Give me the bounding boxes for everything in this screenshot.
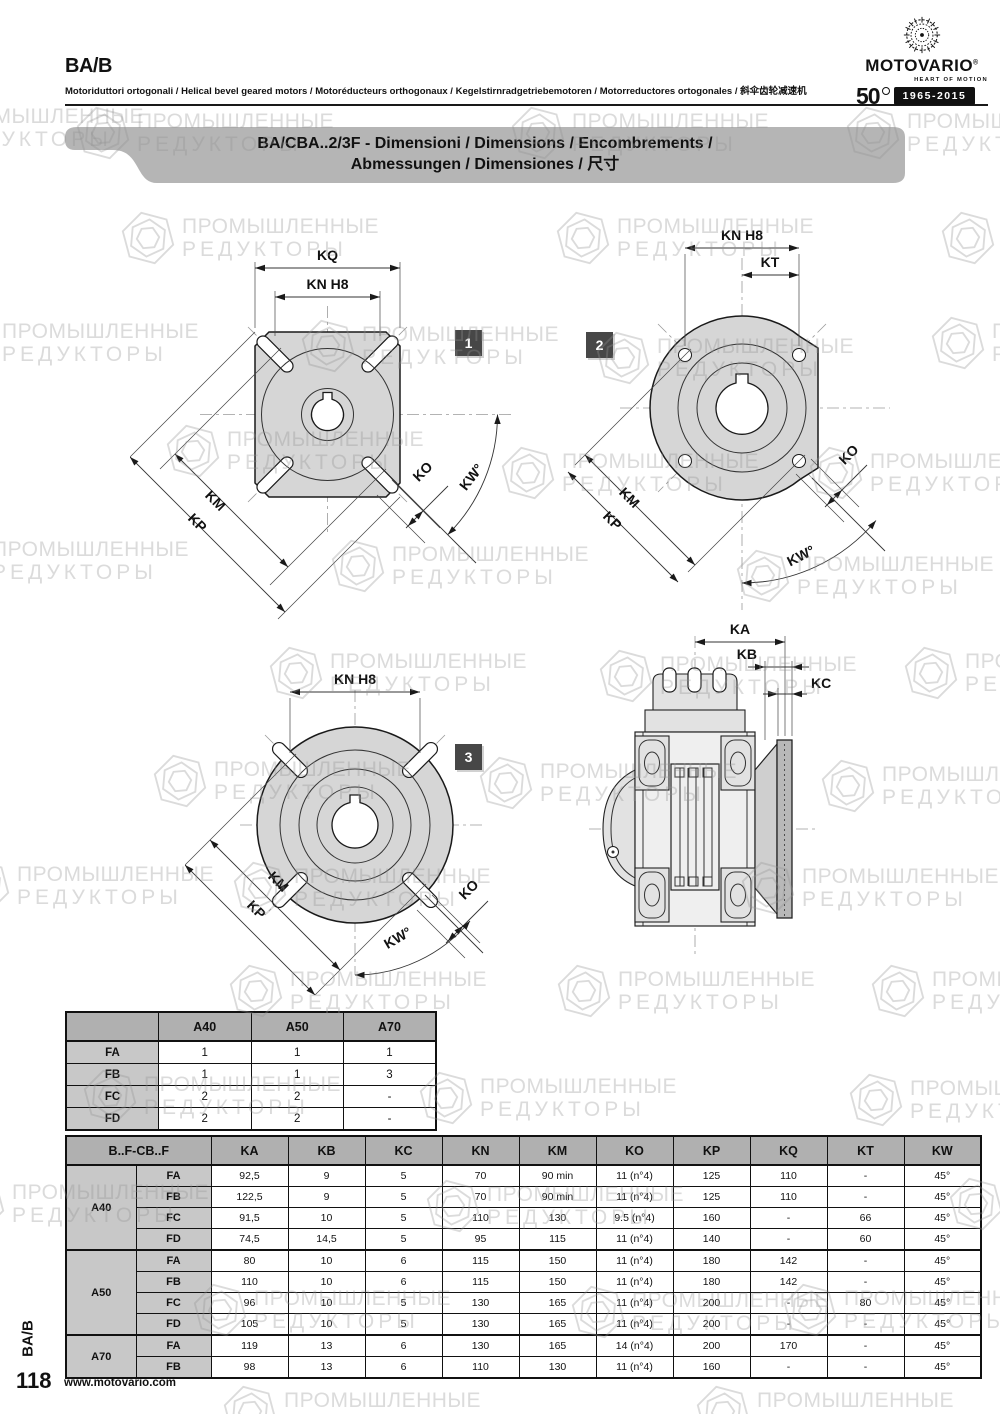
dim-cell: 91,5 — [211, 1208, 288, 1229]
dim-cell: 130 — [519, 1357, 596, 1379]
dim-cell: 11 (n°4) — [596, 1229, 673, 1251]
dim-col-header: KO — [596, 1136, 673, 1165]
watermark: ПРОМЫШЛЕННЫЕРЕДУКТОРЫ — [848, 1072, 1000, 1128]
table-row: A40FA92,5957090 min11 (n°4)125110-45° — [66, 1165, 981, 1187]
brand-name: MOTOVARIO® — [856, 56, 988, 76]
dim-cell: 5 — [365, 1208, 442, 1229]
gear-emblem-icon — [901, 14, 943, 56]
group-label: A50 — [66, 1250, 136, 1335]
dim-cell: 119 — [211, 1335, 288, 1357]
dim-cell: 11 (n°4) — [596, 1250, 673, 1272]
dim-label-ko: KO — [455, 876, 481, 902]
flange-cell: 1 — [159, 1064, 252, 1086]
dim-cell: 45° — [904, 1250, 981, 1272]
dim-cell: 11 (n°4) — [596, 1272, 673, 1293]
dim-cell: 45° — [904, 1293, 981, 1314]
gear-degree-icon — [882, 87, 890, 95]
dim-cell: 6 — [365, 1250, 442, 1272]
dim-cell: 180 — [673, 1250, 750, 1272]
dim-cell: 98 — [211, 1357, 288, 1379]
table-row: FB113 — [66, 1064, 436, 1086]
technical-drawing-square-flange: KQ KN H8 KM KP KO KW° — [130, 228, 530, 648]
dim-cell: 115 — [442, 1272, 519, 1293]
dim-cell: 45° — [904, 1314, 981, 1336]
watermark: ПРОМЫШЛЕННЫЕРЕДУКТОРЫ — [695, 1384, 954, 1414]
dimensions-table: B..F-CB..FKAKBKCKNKMKOKPKQKTKW A40FA92,5… — [65, 1135, 982, 1379]
dim-label-kb: KB — [737, 646, 757, 662]
flange-count-table: A40A50A70 FA111FB113FC22-FD22- — [65, 1011, 437, 1131]
watermark: ПРОМЫШЛЕННЫЕРЕДУКТОРЫ — [0, 858, 214, 914]
dim-cell: 95 — [442, 1229, 519, 1251]
table-row: FC22- — [66, 1086, 436, 1108]
dim-cell: 105 — [211, 1314, 288, 1336]
dim-cell: 5 — [365, 1187, 442, 1208]
website-text: www.motovario.com — [64, 1377, 176, 1389]
dim-cell: 6 — [365, 1357, 442, 1379]
dim-cell: 130 — [442, 1314, 519, 1336]
dim-cell: 45° — [904, 1335, 981, 1357]
variant-label: FD — [136, 1314, 211, 1336]
table-row: FC9610513016511 (n°4)200-8045° — [66, 1293, 981, 1314]
flange-cell: 1 — [159, 1041, 252, 1064]
dim-label-km: KM — [202, 487, 229, 514]
flange-cell: 2 — [159, 1086, 252, 1108]
dim-cell: 80 — [827, 1293, 904, 1314]
dim-cell: 45° — [904, 1208, 981, 1229]
anniversary-years: 1965-2015 — [894, 87, 976, 105]
dim-cell: - — [827, 1335, 904, 1357]
dim-col-header: KB — [288, 1136, 365, 1165]
dim-col-header: KN — [442, 1136, 519, 1165]
catalog-page: BA/B Motoriduttori ortogonali / Helical … — [0, 0, 1000, 1414]
flange-col-header: A70 — [344, 1012, 437, 1041]
registered-mark: ® — [973, 59, 979, 66]
dim-cell: 5 — [365, 1293, 442, 1314]
flange-cell: - — [344, 1086, 437, 1108]
dim-cell: 160 — [673, 1208, 750, 1229]
dim-cell: 90 min — [519, 1187, 596, 1208]
dim-label-kp: KP — [244, 897, 269, 922]
dim-label-kc: KC — [811, 675, 831, 691]
dim-label-kp: KP — [185, 510, 210, 535]
flange-row-label: FA — [66, 1041, 159, 1064]
dim-cell: 90 min — [519, 1165, 596, 1187]
dim-cell: 74,5 — [211, 1229, 288, 1251]
flange-row-label: FB — [66, 1064, 159, 1086]
variant-label: FA — [136, 1250, 211, 1272]
table-row: A50FA8010611515011 (n°4)180142-45° — [66, 1250, 981, 1272]
dim-cell: 110 — [211, 1272, 288, 1293]
dim-cell: 14,5 — [288, 1229, 365, 1251]
dim-col-header: KC — [365, 1136, 442, 1165]
dim-col-header: KM — [519, 1136, 596, 1165]
dim-col-header: KQ — [750, 1136, 827, 1165]
anniversary-number: 50 — [856, 86, 880, 106]
variant-label: FB — [136, 1272, 211, 1293]
dim-cell: 45° — [904, 1187, 981, 1208]
dim-cell: 140 — [673, 1229, 750, 1251]
dim-label-ko: KO — [835, 441, 861, 467]
watermark: ПРОМЫШЛЕННЫЕРЕДУКТОРЫ — [870, 963, 1000, 1019]
dim-cell: 125 — [673, 1187, 750, 1208]
dim-label-km: KM — [616, 484, 643, 511]
dim-label-kw: KW° — [784, 542, 817, 569]
dim-cell: 70 — [442, 1187, 519, 1208]
dim-label-ka: KA — [730, 621, 750, 637]
dim-label-kq: KQ — [317, 247, 338, 263]
variant-label: FA — [136, 1165, 211, 1187]
dim-cell: 11 (n°4) — [596, 1314, 673, 1336]
dim-cell: 110 — [442, 1208, 519, 1229]
dim-cell: 10 — [288, 1208, 365, 1229]
dim-cell: 115 — [519, 1229, 596, 1251]
page-subtitle: Motoriduttori ortogonali / Helical bevel… — [65, 83, 807, 97]
table-row: FB11010611515011 (n°4)180142-45° — [66, 1272, 981, 1293]
dim-group-header: B..F-CB..F — [66, 1136, 211, 1165]
dim-cell: 110 — [750, 1187, 827, 1208]
dim-cell: 70 — [442, 1165, 519, 1187]
flange-cell: - — [344, 1108, 437, 1131]
technical-drawing-side-view: KA KB KC — [585, 618, 920, 963]
page-number: 118 — [16, 1368, 52, 1394]
dim-cell: 45° — [904, 1272, 981, 1293]
dim-cell: 130 — [519, 1208, 596, 1229]
dim-cell: 142 — [750, 1272, 827, 1293]
dim-label-ko: KO — [409, 458, 435, 484]
dim-cell: 10 — [288, 1250, 365, 1272]
watermark: ПРОМЫШЛЕННЫЕРЕДУКТОРЫ — [222, 1384, 481, 1414]
flange-cell: 1 — [344, 1041, 437, 1064]
flange-col-header: A50 — [251, 1012, 344, 1041]
dim-label-kw: KW° — [456, 461, 486, 494]
dim-cell: 115 — [442, 1250, 519, 1272]
dim-cell: 11 (n°4) — [596, 1293, 673, 1314]
variant-label: FC — [136, 1208, 211, 1229]
page-title: BA/B — [65, 55, 112, 78]
variant-label: FB — [136, 1187, 211, 1208]
dim-label-kt: KT — [761, 254, 780, 270]
dim-cell: 92,5 — [211, 1165, 288, 1187]
technical-drawing-round-flange: KN H8 KT KM KP KO KW° — [560, 218, 970, 638]
dim-label-kw: KW° — [381, 924, 414, 952]
header-rule — [65, 104, 988, 106]
dim-cell: - — [750, 1314, 827, 1336]
dim-col-header: KA — [211, 1136, 288, 1165]
dim-label-kn: KN H8 — [334, 671, 376, 687]
table-row: A70FA11913613016514 (n°4)200170-45° — [66, 1335, 981, 1357]
flange-cell: 1 — [251, 1041, 344, 1064]
dim-cell: 5 — [365, 1314, 442, 1336]
flange-col-header — [66, 1012, 159, 1041]
technical-drawing-slotted-flange: KN H8 KM KP KO KW° — [185, 645, 545, 995]
flange-cell: 1 — [251, 1064, 344, 1086]
dim-cell: 150 — [519, 1250, 596, 1272]
dim-cell: 122,5 — [211, 1187, 288, 1208]
dim-cell: - — [827, 1314, 904, 1336]
drawing-badge-3: 3 — [455, 744, 482, 770]
group-label: A40 — [66, 1165, 136, 1250]
dim-cell: 14 (n°4) — [596, 1335, 673, 1357]
dim-col-header: KP — [673, 1136, 750, 1165]
dim-cell: 10 — [288, 1293, 365, 1314]
dim-cell: 45° — [904, 1357, 981, 1379]
dim-cell: 9 — [288, 1187, 365, 1208]
dim-cell: 45° — [904, 1229, 981, 1251]
side-tab-label: BA/B — [20, 1313, 37, 1365]
section-title-line1: BA/CBA..2/3F - Dimensioni / Dimensions /… — [135, 133, 835, 154]
flange-col-header: A40 — [159, 1012, 252, 1041]
dim-cell: 160 — [673, 1357, 750, 1379]
dim-label-kp: KP — [600, 508, 625, 533]
flange-cell: 2 — [251, 1108, 344, 1131]
drawing-badge-1: 1 — [455, 330, 482, 356]
dim-cell: 10 — [288, 1272, 365, 1293]
variant-label: FC — [136, 1293, 211, 1314]
flange-cell: 3 — [344, 1064, 437, 1086]
flange-cell: 2 — [251, 1086, 344, 1108]
dim-label-kn: KN H8 — [306, 276, 348, 292]
dim-cell: - — [750, 1208, 827, 1229]
dim-cell: 66 — [827, 1208, 904, 1229]
dim-cell: 9.5 (n°4) — [596, 1208, 673, 1229]
motovario-logo: MOTOVARIO® HEART OF MOTION 50 1965-2015 — [856, 14, 988, 106]
section-title-line2: Abmessungen / Dimensiones / 尺寸 — [135, 154, 835, 175]
dim-cell: 165 — [519, 1335, 596, 1357]
flange-cell: 2 — [159, 1108, 252, 1131]
dim-cell: - — [750, 1229, 827, 1251]
dim-cell: 170 — [750, 1335, 827, 1357]
watermark: ПРОМЫШЛЕННЫЕРЕДУКТОРЫ — [556, 963, 815, 1019]
dim-cell: 6 — [365, 1272, 442, 1293]
dim-cell: - — [750, 1357, 827, 1379]
dim-cell: 9 — [288, 1165, 365, 1187]
dim-cell: 150 — [519, 1272, 596, 1293]
dim-cell: 110 — [442, 1357, 519, 1379]
dim-cell: 10 — [288, 1314, 365, 1336]
variant-label: FB — [136, 1357, 211, 1379]
dim-cell: - — [827, 1250, 904, 1272]
table-row: FA111 — [66, 1041, 436, 1064]
dim-col-header: KW — [904, 1136, 981, 1165]
dim-cell: 80 — [211, 1250, 288, 1272]
dim-cell: - — [827, 1357, 904, 1379]
table-row: FB122,5957090 min11 (n°4)125110-45° — [66, 1187, 981, 1208]
dim-col-header: KT — [827, 1136, 904, 1165]
dim-cell: 165 — [519, 1314, 596, 1336]
dim-cell: 5 — [365, 1165, 442, 1187]
dim-cell: 142 — [750, 1250, 827, 1272]
dim-cell: - — [827, 1165, 904, 1187]
drawing-badge-2: 2 — [586, 332, 613, 358]
dim-cell: 180 — [673, 1272, 750, 1293]
dim-cell: - — [750, 1293, 827, 1314]
section-title: BA/CBA..2/3F - Dimensioni / Dimensions /… — [135, 133, 835, 175]
watermark: ПРОМЫШЛЕННЫЕРЕДУКТОРЫ — [418, 1070, 677, 1126]
dim-cell: - — [827, 1272, 904, 1293]
flange-row-label: FC — [66, 1086, 159, 1108]
dim-cell: 96 — [211, 1293, 288, 1314]
dim-cell: 130 — [442, 1335, 519, 1357]
flange-row-label: FD — [66, 1108, 159, 1131]
dim-cell: 11 (n°4) — [596, 1357, 673, 1379]
table-row: FC91,51051101309.5 (n°4)160-6645° — [66, 1208, 981, 1229]
dim-label-kn: KN H8 — [721, 227, 763, 243]
table-row: FD22- — [66, 1108, 436, 1131]
dim-cell: 5 — [365, 1229, 442, 1251]
dim-cell: 60 — [827, 1229, 904, 1251]
dim-cell: 13 — [288, 1357, 365, 1379]
dim-cell: 200 — [673, 1335, 750, 1357]
dim-cell: 6 — [365, 1335, 442, 1357]
dim-cell: 125 — [673, 1165, 750, 1187]
table-row: FD74,514,559511511 (n°4)140-6045° — [66, 1229, 981, 1251]
variant-label: FA — [136, 1335, 211, 1357]
dim-cell: 165 — [519, 1293, 596, 1314]
dim-cell: 45° — [904, 1165, 981, 1187]
dim-cell: 110 — [750, 1165, 827, 1187]
dim-cell: 13 — [288, 1335, 365, 1357]
table-row: FD10510513016511 (n°4)200--45° — [66, 1314, 981, 1336]
group-label: A70 — [66, 1335, 136, 1378]
dim-cell: 200 — [673, 1293, 750, 1314]
anniversary-badge: 50 1965-2015 — [856, 86, 988, 106]
dim-cell: 11 (n°4) — [596, 1187, 673, 1208]
dim-cell: 11 (n°4) — [596, 1165, 673, 1187]
table-row: FB9813611013011 (n°4)160--45° — [66, 1357, 981, 1379]
dim-cell: 200 — [673, 1314, 750, 1336]
dim-cell: 130 — [442, 1293, 519, 1314]
dim-cell: - — [827, 1187, 904, 1208]
variant-label: FD — [136, 1229, 211, 1251]
